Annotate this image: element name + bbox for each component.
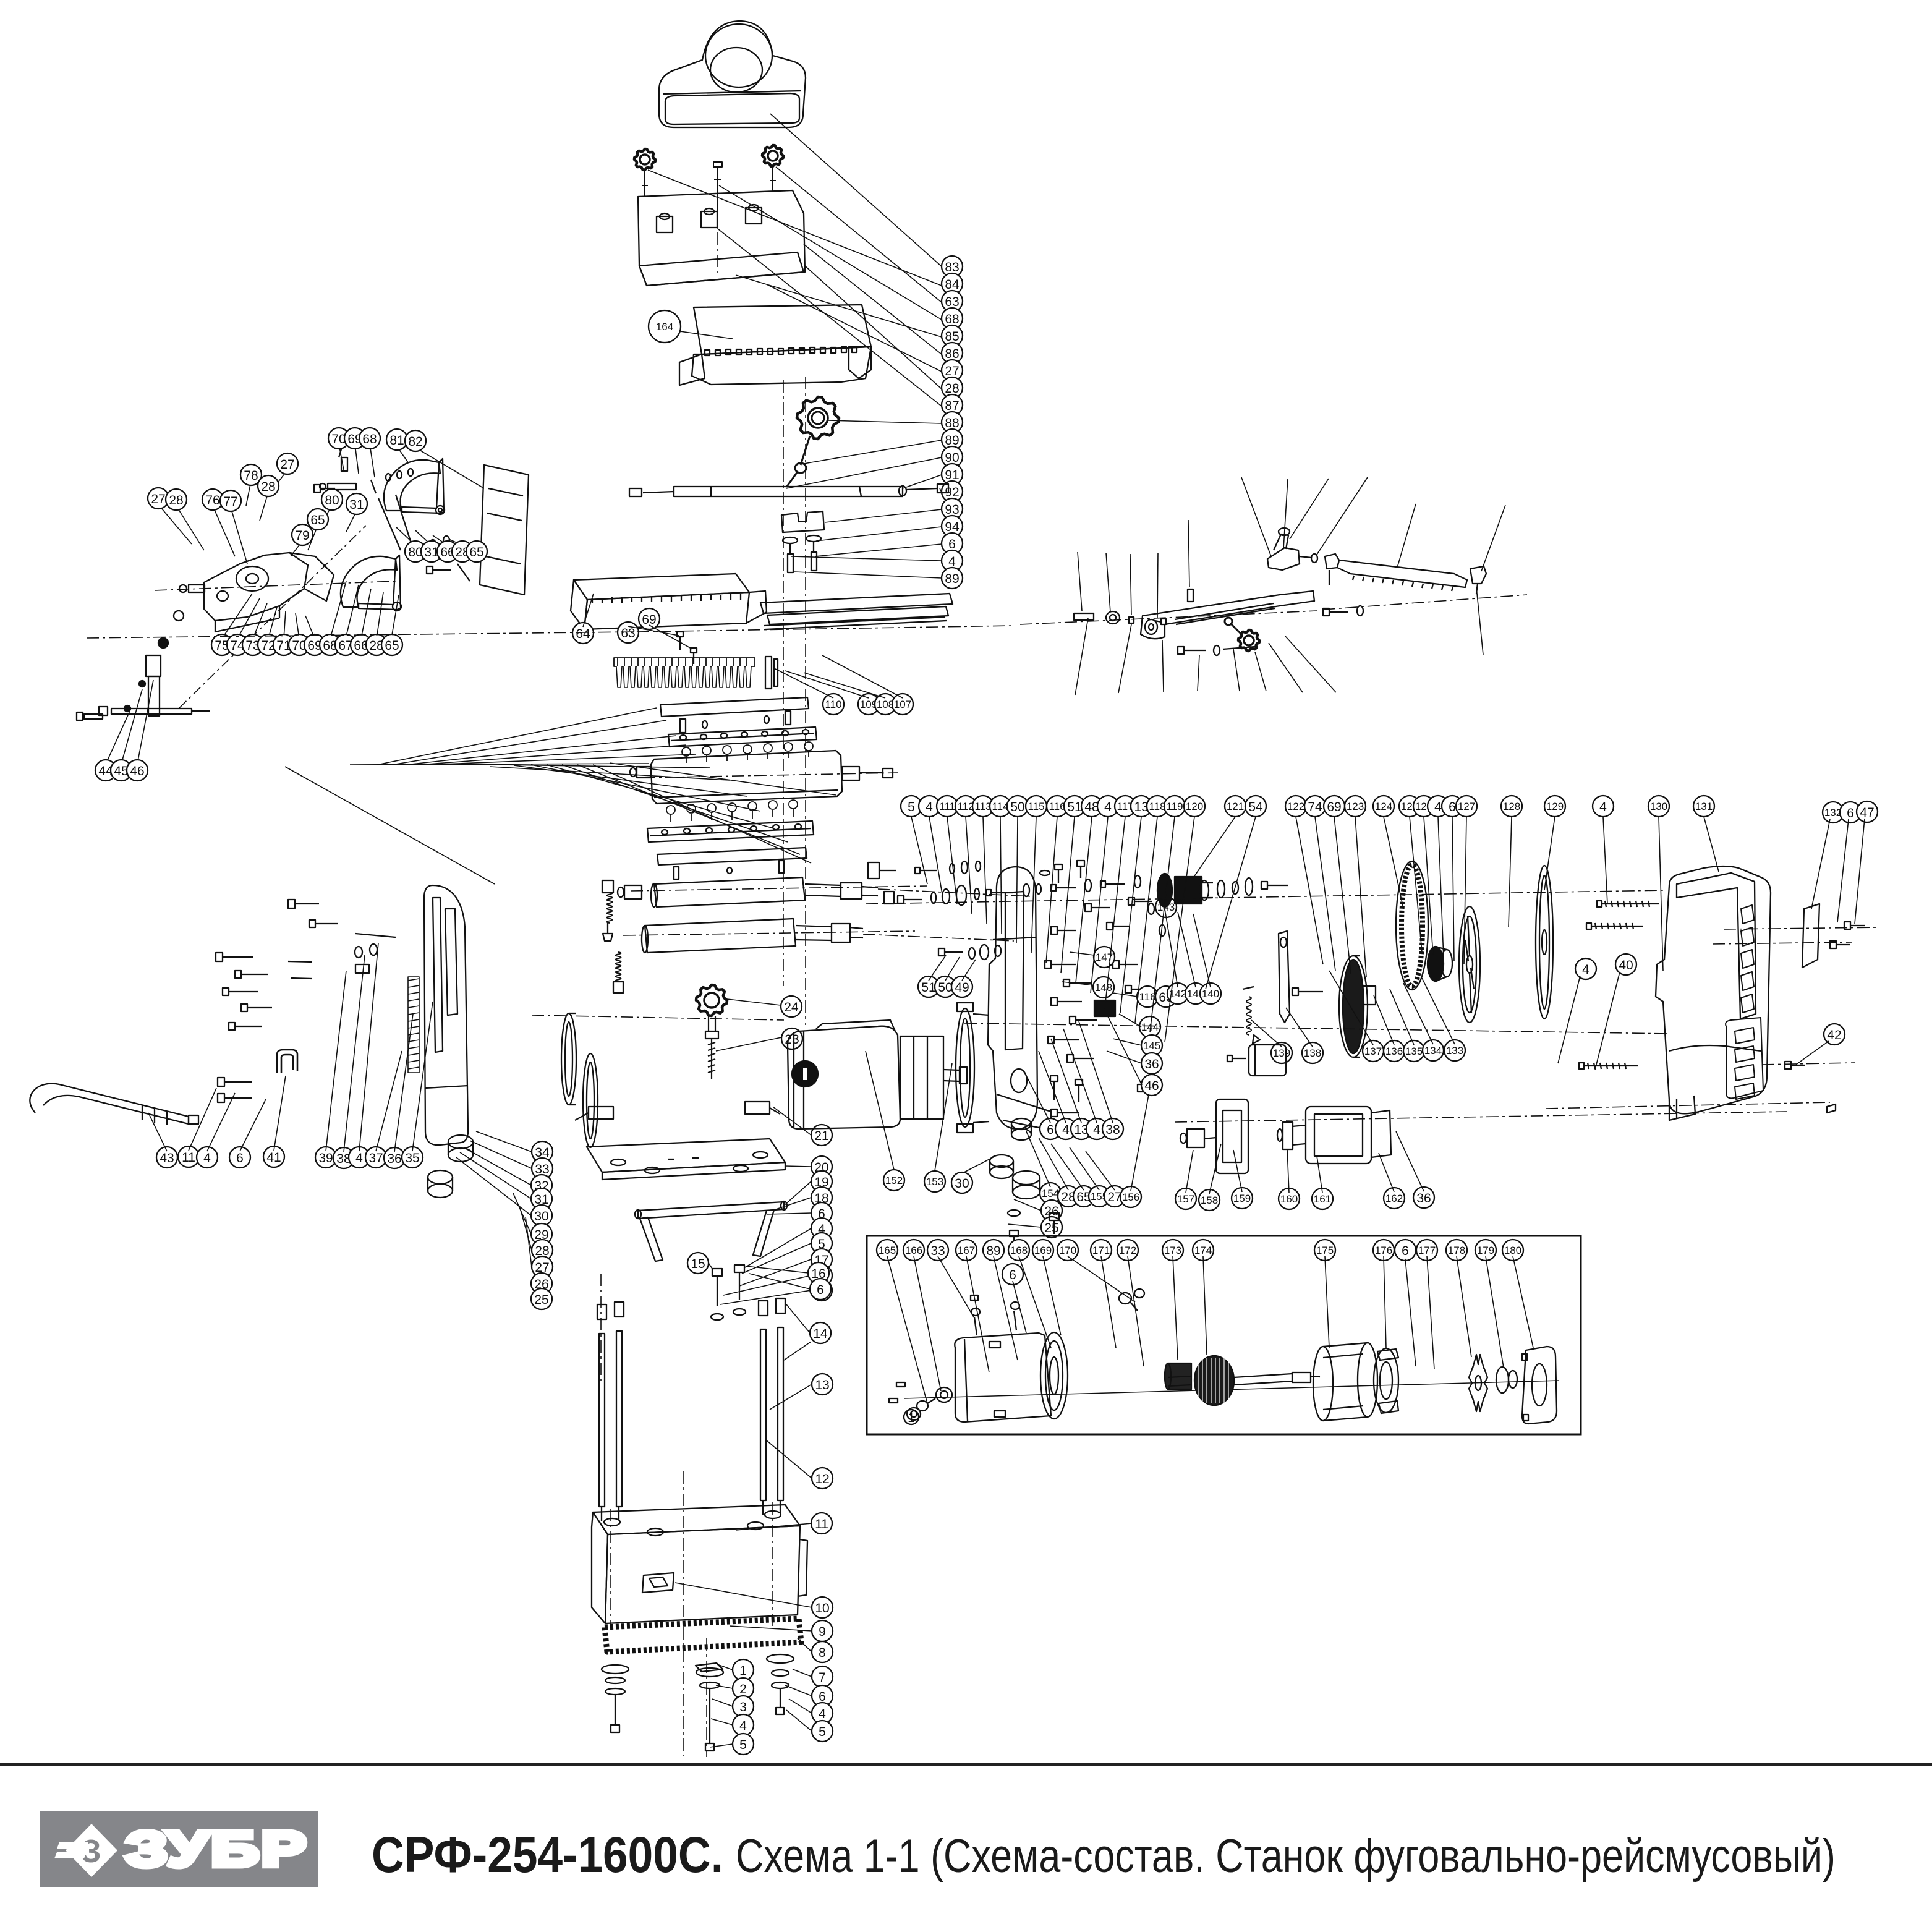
- svg-text:4: 4: [1582, 963, 1589, 977]
- svg-text:138: 138: [1304, 1047, 1321, 1059]
- svg-text:14: 14: [813, 1327, 828, 1341]
- svg-text:145: 145: [1143, 1040, 1160, 1052]
- svg-text:159: 159: [1233, 1193, 1251, 1204]
- svg-text:6: 6: [1009, 1268, 1016, 1282]
- svg-text:74: 74: [1308, 800, 1322, 814]
- svg-text:88: 88: [945, 416, 959, 430]
- svg-text:37: 37: [368, 1151, 383, 1165]
- svg-text:4: 4: [1062, 1123, 1070, 1137]
- svg-text:158: 158: [1201, 1194, 1218, 1206]
- svg-text:140: 140: [1202, 988, 1219, 1000]
- svg-text:28: 28: [169, 493, 183, 508]
- svg-text:176: 176: [1375, 1245, 1392, 1256]
- svg-text:154: 154: [1042, 1188, 1059, 1199]
- svg-text:79: 79: [295, 529, 309, 543]
- svg-text:152: 152: [885, 1175, 903, 1186]
- svg-text:179: 179: [1477, 1245, 1494, 1256]
- svg-text:173: 173: [1164, 1245, 1181, 1256]
- svg-text:3: 3: [739, 1700, 747, 1714]
- svg-text:172: 172: [1119, 1245, 1136, 1256]
- svg-text:65: 65: [469, 545, 483, 560]
- svg-text:122: 122: [1287, 801, 1304, 812]
- svg-text:6: 6: [817, 1283, 824, 1297]
- svg-text:180: 180: [1504, 1245, 1521, 1256]
- svg-text:4: 4: [1599, 800, 1607, 814]
- svg-text:128: 128: [1503, 801, 1520, 812]
- svg-text:64: 64: [576, 627, 590, 641]
- svg-text:33: 33: [930, 1244, 945, 1258]
- svg-text:4: 4: [355, 1151, 363, 1165]
- svg-text:30: 30: [955, 1177, 969, 1191]
- svg-text:170: 170: [1059, 1245, 1076, 1256]
- svg-text:156: 156: [1122, 1191, 1139, 1203]
- svg-text:54: 54: [1248, 800, 1263, 814]
- svg-text:83: 83: [945, 260, 959, 274]
- svg-text:111: 111: [939, 801, 955, 812]
- svg-text:49: 49: [955, 981, 969, 995]
- svg-text:4: 4: [1093, 1123, 1100, 1137]
- svg-text:11: 11: [815, 1517, 828, 1531]
- svg-text:1: 1: [739, 1664, 747, 1678]
- svg-text:10: 10: [815, 1601, 829, 1615]
- svg-text:4: 4: [948, 555, 956, 569]
- svg-text:27: 27: [280, 457, 294, 472]
- svg-text:6: 6: [236, 1151, 244, 1165]
- svg-text:123: 123: [1347, 801, 1364, 812]
- svg-text:36: 36: [1144, 1057, 1159, 1071]
- svg-text:5: 5: [739, 1738, 747, 1752]
- svg-text:6: 6: [1402, 1244, 1409, 1258]
- svg-text:4: 4: [819, 1707, 826, 1721]
- svg-text:15: 15: [691, 1257, 705, 1271]
- svg-text:36: 36: [1416, 1191, 1431, 1206]
- svg-text:4: 4: [739, 1719, 747, 1733]
- svg-text:28: 28: [261, 480, 275, 494]
- svg-text:78: 78: [244, 469, 258, 483]
- svg-text:47: 47: [1860, 806, 1874, 820]
- svg-text:171: 171: [1092, 1245, 1110, 1256]
- svg-text:174: 174: [1194, 1245, 1212, 1256]
- svg-text:42: 42: [1827, 1028, 1841, 1042]
- svg-text:168: 168: [1010, 1245, 1028, 1256]
- svg-text:65: 65: [385, 639, 399, 653]
- svg-text:13: 13: [815, 1378, 829, 1392]
- svg-text:27: 27: [945, 364, 959, 378]
- svg-text:160: 160: [1280, 1193, 1298, 1205]
- svg-text:65: 65: [310, 513, 325, 527]
- svg-text:134: 134: [1424, 1045, 1442, 1057]
- svg-text:139: 139: [1273, 1047, 1290, 1059]
- svg-text:25: 25: [1044, 1221, 1058, 1235]
- svg-text:113: 113: [974, 801, 991, 812]
- svg-text:89: 89: [945, 433, 959, 448]
- svg-text:38: 38: [1105, 1123, 1120, 1137]
- svg-text:46: 46: [130, 764, 144, 778]
- svg-text:4: 4: [1434, 800, 1442, 814]
- svg-text:85: 85: [945, 330, 959, 344]
- svg-text:115: 115: [1028, 801, 1044, 812]
- svg-text:129: 129: [1546, 801, 1564, 812]
- svg-text:63: 63: [945, 295, 959, 309]
- svg-text:11: 11: [182, 1151, 195, 1165]
- svg-text:7: 7: [819, 1670, 826, 1685]
- svg-text:35: 35: [405, 1151, 419, 1165]
- svg-text:69: 69: [1327, 800, 1341, 814]
- svg-text:110: 110: [825, 699, 841, 710]
- svg-text:165: 165: [879, 1245, 896, 1256]
- svg-text:6: 6: [948, 537, 956, 551]
- svg-text:169: 169: [1034, 1245, 1052, 1256]
- svg-text:31: 31: [349, 498, 364, 512]
- svg-text:6: 6: [819, 1690, 826, 1704]
- svg-text:94: 94: [945, 520, 960, 534]
- svg-text:130: 130: [1650, 801, 1667, 812]
- svg-text:4: 4: [1104, 800, 1112, 814]
- svg-text:137: 137: [1364, 1045, 1382, 1057]
- svg-text:9: 9: [819, 1625, 826, 1639]
- svg-text:77: 77: [223, 495, 237, 509]
- svg-text:6: 6: [1847, 806, 1854, 820]
- svg-text:121: 121: [1227, 801, 1244, 812]
- svg-text:166: 166: [905, 1245, 922, 1256]
- svg-text:157: 157: [1177, 1193, 1194, 1205]
- svg-text:36: 36: [387, 1152, 401, 1166]
- svg-text:28: 28: [945, 381, 959, 396]
- svg-text:161: 161: [1314, 1193, 1331, 1205]
- svg-text:127: 127: [1458, 801, 1475, 812]
- svg-text:63: 63: [621, 626, 635, 640]
- svg-text:131: 131: [1695, 801, 1713, 812]
- svg-text:27: 27: [151, 492, 165, 506]
- svg-text:119: 119: [1166, 801, 1183, 812]
- svg-text:178: 178: [1448, 1245, 1465, 1256]
- svg-text:93: 93: [945, 503, 959, 517]
- svg-text:124: 124: [1375, 801, 1392, 812]
- svg-text:90: 90: [945, 451, 959, 465]
- svg-text:12: 12: [815, 1472, 829, 1486]
- svg-text:82: 82: [408, 435, 422, 449]
- svg-text:76: 76: [205, 493, 219, 508]
- svg-text:40: 40: [1619, 958, 1633, 972]
- svg-text:43: 43: [160, 1151, 174, 1165]
- svg-text:З: З: [81, 1834, 101, 1870]
- svg-text:5: 5: [819, 1725, 826, 1739]
- svg-text:СРФ-254-1600С.: СРФ-254-1600С.: [372, 1827, 723, 1883]
- svg-text:136: 136: [1385, 1045, 1403, 1057]
- svg-text:ЗУБР: ЗУБР: [126, 1821, 309, 1876]
- svg-text:41: 41: [266, 1151, 281, 1165]
- svg-text:69: 69: [642, 613, 656, 627]
- svg-text:5: 5: [908, 800, 915, 814]
- svg-text:39: 39: [318, 1151, 333, 1165]
- svg-text:50: 50: [1010, 800, 1024, 814]
- svg-text:8: 8: [819, 1646, 826, 1660]
- svg-text:25: 25: [534, 1293, 548, 1307]
- svg-text:175: 175: [1316, 1245, 1334, 1256]
- svg-text:24: 24: [784, 1000, 799, 1015]
- svg-text:30: 30: [534, 1209, 548, 1223]
- svg-text:107: 107: [894, 699, 911, 710]
- svg-text:89: 89: [945, 572, 959, 586]
- svg-text:135: 135: [1405, 1045, 1423, 1057]
- svg-text:6: 6: [1047, 1123, 1054, 1137]
- svg-text:120: 120: [1186, 801, 1203, 812]
- svg-text:89: 89: [986, 1244, 1000, 1258]
- svg-text:177: 177: [1418, 1245, 1436, 1256]
- svg-text:162: 162: [1385, 1193, 1403, 1204]
- svg-text:68: 68: [945, 312, 959, 326]
- svg-text:68: 68: [362, 432, 377, 446]
- svg-text:133: 133: [1446, 1045, 1463, 1057]
- svg-text:91: 91: [945, 468, 959, 482]
- svg-text:114: 114: [992, 801, 1008, 812]
- svg-text:4: 4: [203, 1151, 211, 1165]
- svg-text:116: 116: [1049, 801, 1065, 812]
- svg-text:4: 4: [926, 800, 933, 814]
- svg-text:87: 87: [945, 399, 959, 413]
- svg-text:81: 81: [389, 433, 404, 448]
- svg-text:164: 164: [656, 321, 673, 333]
- svg-text:80: 80: [325, 493, 339, 508]
- svg-text:84: 84: [945, 278, 960, 292]
- svg-text:86: 86: [945, 347, 959, 361]
- svg-text:153: 153: [926, 1176, 943, 1188]
- svg-text:6: 6: [1449, 800, 1456, 814]
- svg-text:51: 51: [1067, 800, 1081, 814]
- svg-text:51: 51: [921, 981, 935, 995]
- svg-text:50: 50: [938, 981, 952, 995]
- svg-text:46: 46: [1144, 1079, 1159, 1093]
- svg-text:112: 112: [957, 801, 974, 812]
- svg-text:Схема 1-1 (Схема-состав. Стано: Схема 1-1 (Схема-состав. Станок фуговаль…: [736, 1830, 1836, 1883]
- svg-text:2: 2: [739, 1682, 747, 1696]
- svg-text:21: 21: [814, 1129, 828, 1143]
- svg-text:167: 167: [958, 1245, 975, 1256]
- svg-text:148: 148: [1095, 982, 1112, 994]
- svg-text:118: 118: [1149, 801, 1165, 812]
